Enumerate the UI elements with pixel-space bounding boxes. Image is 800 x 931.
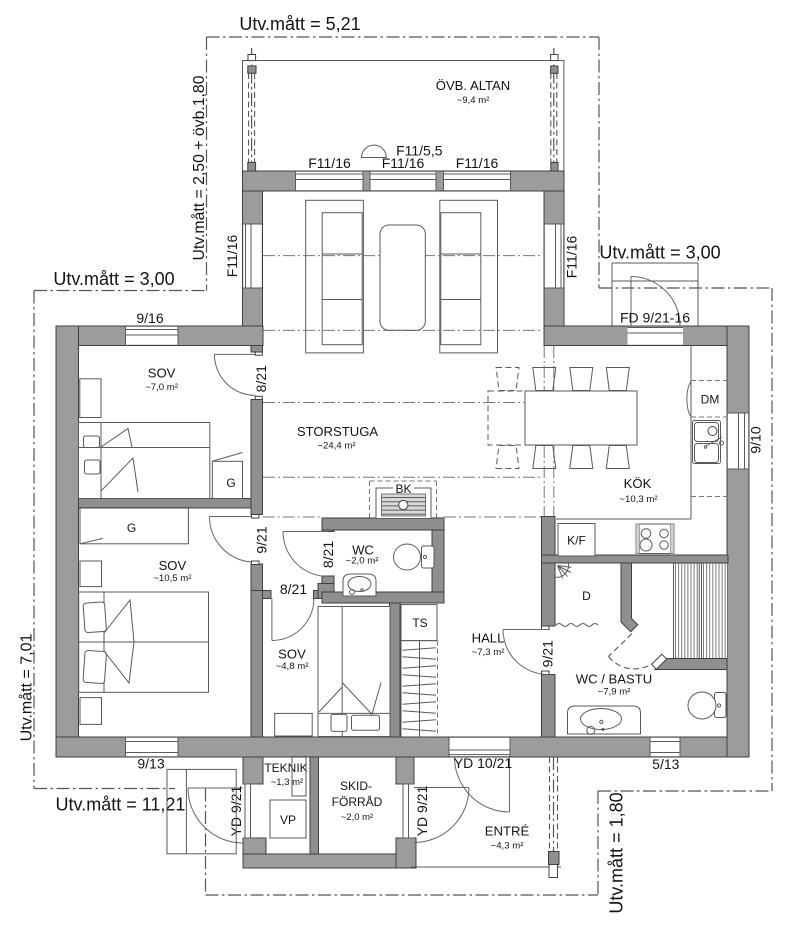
svg-text:~24,4 m²: ~24,4 m² — [317, 441, 356, 452]
svg-text:~4,3 m²: ~4,3 m² — [491, 841, 525, 852]
svg-text:TS: TS — [412, 616, 427, 630]
svg-text:FÖRRÅD: FÖRRÅD — [332, 794, 383, 809]
svg-text:Utv.mått = 3,00: Utv.mått = 3,00 — [53, 269, 174, 289]
svg-text:Utv.mått = 11,21: Utv.mått = 11,21 — [56, 795, 186, 815]
svg-text:8/21: 8/21 — [320, 541, 336, 568]
svg-text:~9,4 m²: ~9,4 m² — [457, 95, 491, 106]
svg-text:G: G — [127, 521, 136, 535]
svg-text:SOV: SOV — [278, 647, 306, 662]
svg-text:9/21: 9/21 — [254, 526, 270, 553]
svg-text:~7,9 m²: ~7,9 m² — [598, 687, 632, 698]
svg-text:SKID-: SKID- — [340, 779, 372, 793]
svg-text:STORSTUGA: STORSTUGA — [297, 424, 379, 439]
svg-text:Utv.mått = 1,80: Utv.mått = 1,80 — [607, 792, 627, 913]
svg-text:F11/16: F11/16 — [224, 235, 240, 278]
svg-text:SOV: SOV — [148, 366, 176, 381]
svg-text:KÖK: KÖK — [624, 476, 652, 491]
svg-text:F11/16: F11/16 — [382, 155, 425, 171]
svg-text:Utv.mått = 3,00: Utv.mått = 3,00 — [599, 243, 720, 263]
svg-text:9/10: 9/10 — [748, 426, 764, 453]
svg-text:YD 9/21: YD 9/21 — [414, 785, 430, 836]
svg-text:G: G — [226, 476, 235, 490]
svg-text:D: D — [582, 589, 591, 603]
svg-text:~10,5 m²: ~10,5 m² — [153, 573, 192, 584]
svg-text:8/21: 8/21 — [253, 365, 269, 392]
svg-text:F11/16: F11/16 — [564, 236, 580, 279]
svg-text:9/13: 9/13 — [137, 756, 164, 772]
svg-text:WC / BASTU: WC / BASTU — [576, 672, 652, 687]
svg-text:Utv.mått = 5,21: Utv.mått = 5,21 — [239, 14, 360, 34]
svg-text:ÖVB. ALTAN: ÖVB. ALTAN — [436, 78, 510, 93]
svg-text:HALL: HALL — [472, 631, 505, 646]
svg-text:TEKNIK: TEKNIK — [264, 761, 307, 775]
svg-text:9/21: 9/21 — [540, 640, 556, 667]
svg-text:~2,0 m²: ~2,0 m² — [346, 556, 380, 567]
svg-text:F11/16: F11/16 — [456, 155, 499, 171]
svg-text:5/13: 5/13 — [652, 756, 679, 772]
svg-text:~7,3 m²: ~7,3 m² — [472, 647, 506, 658]
svg-text:~10,3 m²: ~10,3 m² — [619, 494, 658, 505]
svg-text:~4,8 m²: ~4,8 m² — [276, 661, 310, 672]
svg-text:Utv.mått = 7,01: Utv.mått = 7,01 — [18, 634, 36, 742]
svg-text:~2,0 m²: ~2,0 m² — [341, 812, 373, 823]
svg-text:BK: BK — [395, 482, 411, 496]
svg-text:~1,3 m²: ~1,3 m² — [271, 777, 303, 788]
svg-text:9/16: 9/16 — [136, 310, 163, 326]
svg-text:8/21: 8/21 — [280, 581, 307, 597]
svg-text:VP: VP — [280, 813, 296, 827]
svg-text:K/F: K/F — [567, 534, 586, 548]
svg-text:DM: DM — [701, 393, 720, 407]
svg-text:~7,0 m²: ~7,0 m² — [145, 382, 179, 393]
svg-text:Utv.mått = 2,50 + övb.1,80: Utv.mått = 2,50 + övb.1,80 — [190, 75, 208, 260]
svg-text:FD 9/21-16: FD 9/21-16 — [620, 310, 690, 326]
svg-text:F11/16: F11/16 — [308, 155, 351, 171]
svg-text:YD 10/21: YD 10/21 — [454, 755, 513, 771]
svg-text:SOV: SOV — [159, 558, 187, 573]
svg-text:ENTRÉ: ENTRÉ — [485, 824, 530, 839]
